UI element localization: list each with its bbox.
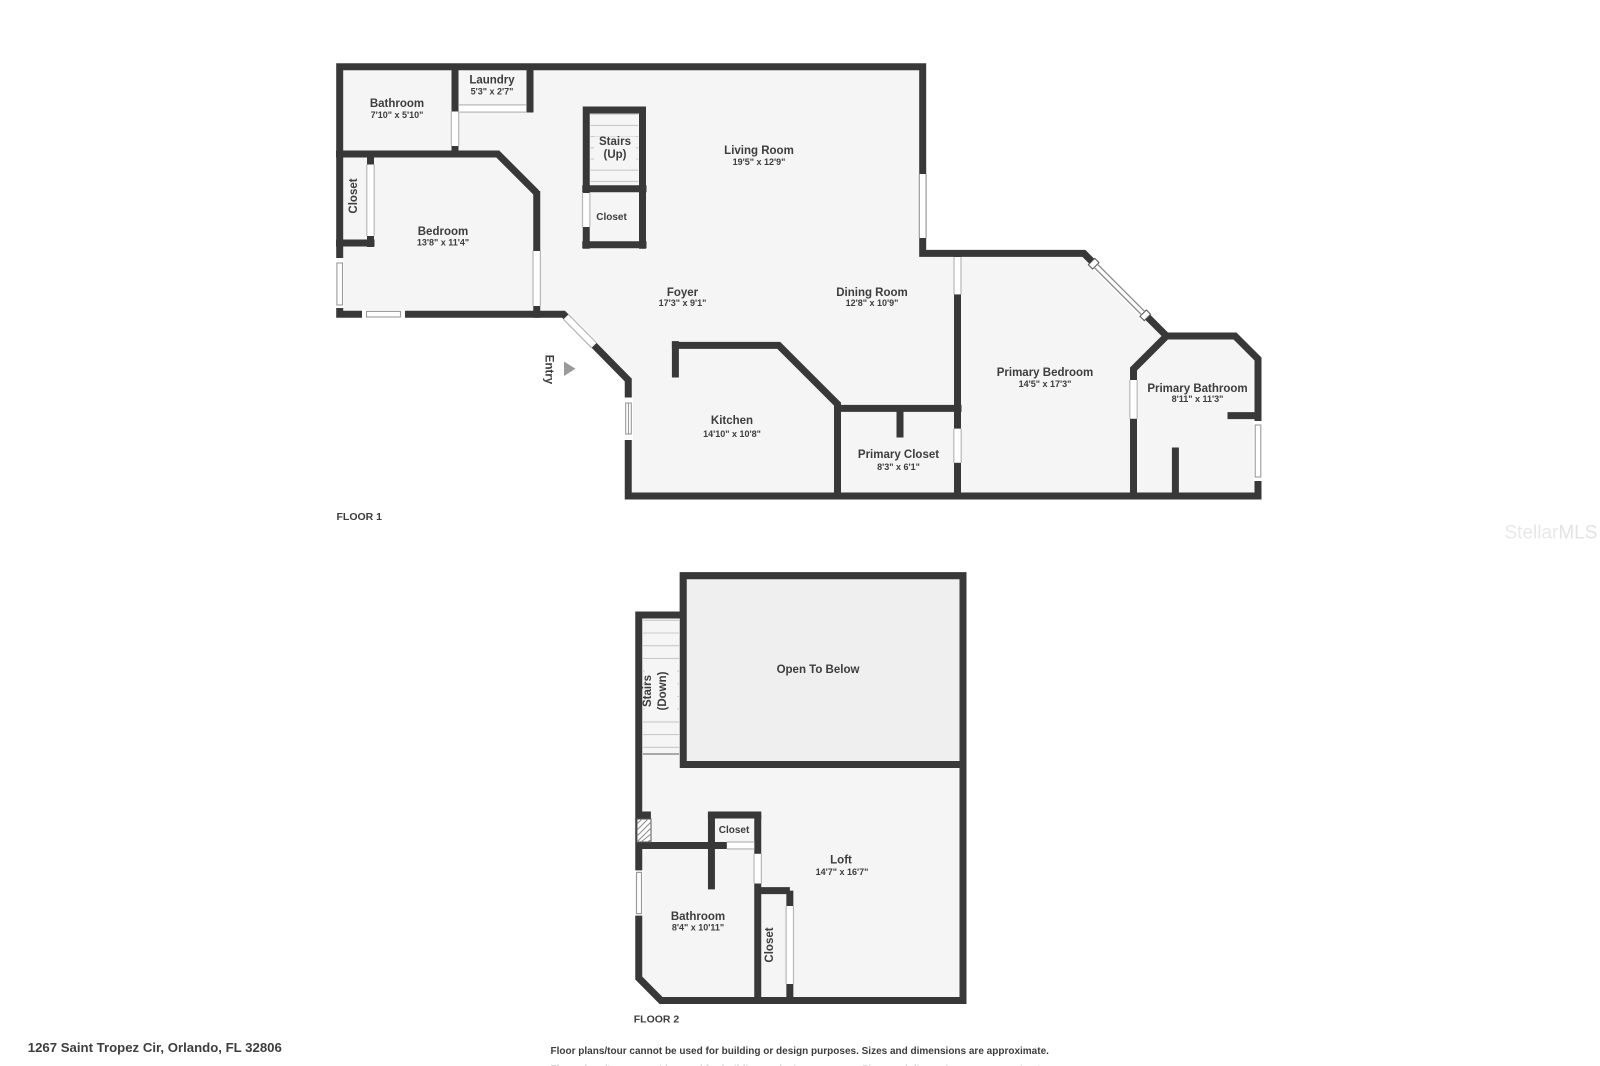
svg-text:Stairs: Stairs [642, 675, 654, 707]
svg-text:8'4" x 10'11": 8'4" x 10'11" [672, 923, 724, 933]
svg-text:Closet: Closet [596, 212, 627, 223]
svg-text:Floor plans/tour cannot be use: Floor plans/tour cannot be used for buil… [551, 1046, 1050, 1057]
svg-text:Primary Bedroom: Primary Bedroom [997, 367, 1094, 379]
svg-text:Closet: Closet [348, 178, 360, 213]
svg-text:1267 Saint Tropez Cir, Orlando: 1267 Saint Tropez Cir, Orlando, FL 32806 [28, 1040, 282, 1055]
svg-text:Primary Closet: Primary Closet [858, 449, 939, 461]
svg-text:5'3" x 2'7": 5'3" x 2'7" [471, 87, 514, 97]
svg-text:Bathroom: Bathroom [671, 911, 725, 923]
svg-text:14'5" x 17'3": 14'5" x 17'3" [1019, 379, 1072, 389]
svg-text:Entry: Entry [543, 355, 555, 385]
svg-text:19'5" x 12'9": 19'5" x 12'9" [733, 157, 786, 167]
svg-text:(Down): (Down) [657, 671, 669, 710]
svg-text:17'3" x 9'1": 17'3" x 9'1" [659, 298, 707, 308]
svg-text:14'10" x 10'8": 14'10" x 10'8" [703, 429, 761, 439]
svg-text:13'8" x 11'4": 13'8" x 11'4" [417, 238, 469, 248]
svg-text:Stairs: Stairs [599, 136, 631, 148]
svg-text:FLOOR 2: FLOOR 2 [634, 1014, 680, 1026]
svg-text:Closet: Closet [764, 927, 776, 962]
svg-text:StellarMLS: StellarMLS [1505, 523, 1598, 544]
svg-text:14'7" x 16'7": 14'7" x 16'7" [816, 867, 869, 877]
svg-text:Living Room: Living Room [724, 145, 794, 157]
svg-text:12'8" x 10'9": 12'8" x 10'9" [846, 298, 899, 308]
svg-text:8'3" x 6'1": 8'3" x 6'1" [877, 462, 920, 472]
svg-text:8'11" x 11'3": 8'11" x 11'3" [1172, 394, 1224, 404]
svg-text:Laundry: Laundry [469, 75, 515, 87]
svg-text:Open To Below: Open To Below [777, 664, 860, 676]
svg-text:Closet: Closet [719, 825, 750, 836]
svg-text:7'10" x 5'10": 7'10" x 5'10" [371, 110, 424, 120]
svg-text:FLOOR 1: FLOOR 1 [337, 511, 383, 523]
svg-text:(Up): (Up) [604, 149, 627, 161]
svg-text:Bedroom: Bedroom [418, 226, 468, 238]
svg-text:Kitchen: Kitchen [711, 415, 753, 427]
svg-text:Bathroom: Bathroom [370, 98, 424, 110]
svg-text:Loft: Loft [830, 855, 852, 867]
